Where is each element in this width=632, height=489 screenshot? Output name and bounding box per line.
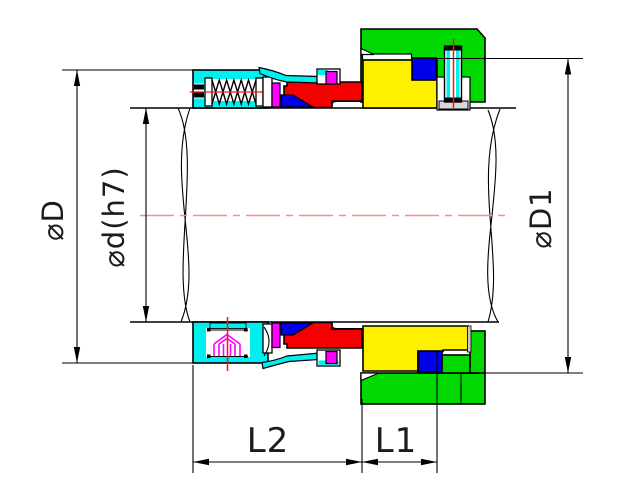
seat-gap-strip [468,326,472,352]
elastomer-bar-top [272,83,280,107]
rotary-ring-notch-bottom [332,323,362,329]
elastomer-bar-bottom [272,323,280,348]
arrow-down [565,357,571,373]
arrow-right [421,459,437,465]
arrow-left [193,459,209,465]
retainer-band-bottom [262,353,319,369]
pin-lining-right [456,50,460,98]
arrow-down [74,347,80,363]
label-L1: L1 [375,421,418,461]
tick3 [207,355,211,359]
arrow-up [143,108,149,124]
drive-collar-bottom [193,322,268,363]
arrow-down [143,306,149,322]
collar-slot-bar1 [194,85,204,90]
arrow-up [565,59,571,75]
dimensions: ⌀D ⌀d(h7) ⌀D1 L2 [36,59,583,474]
arrow-up [74,70,80,86]
gland-leg-bottom [470,331,485,373]
rotary-ring-notch-top [332,102,362,108]
follower-plate-top [263,77,272,107]
gland-slab-bottom [361,373,485,404]
label-phi-D: ⌀D [36,199,70,241]
tick1 [207,328,211,332]
label-L2: L2 [247,421,290,461]
anti-rotation-pin [445,39,462,108]
seat-oring-top [412,58,436,80]
seat-oring-bottom [418,351,442,372]
upper-seal-assembly [190,29,485,110]
tick4 [244,355,248,359]
arrow-right [346,459,362,465]
technical-drawing-canvas: ⌀D ⌀d(h7) ⌀D1 L2 [0,0,632,489]
lower-seal-assembly [193,317,485,404]
setscrew-top [326,72,337,85]
label-phi-D1: ⌀D1 [524,187,558,248]
setscrew-bottom [326,352,337,364]
collar-slot-bar2 [194,93,204,98]
label-phi-d: ⌀d(h7) [97,166,131,267]
seal-drawing-svg: ⌀D ⌀d(h7) ⌀D1 L2 [0,0,632,489]
pin-lining-left [447,50,451,98]
tick2 [244,328,248,332]
shaft [130,108,516,322]
